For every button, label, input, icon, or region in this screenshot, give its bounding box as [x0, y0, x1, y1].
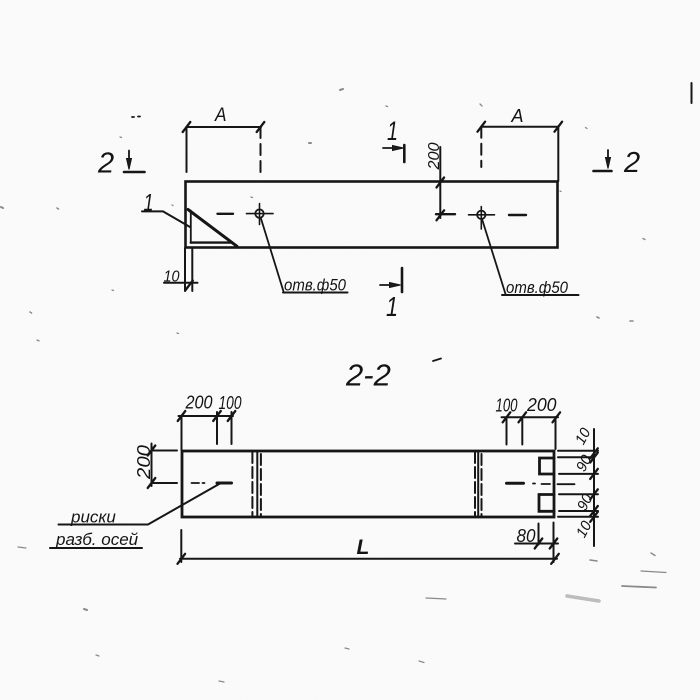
svg-text:разб. осей: разб. осей [55, 530, 139, 549]
svg-text:10: 10 [164, 269, 180, 286]
svg-text:отв.ф50: отв.ф50 [284, 276, 346, 295]
svg-text:200: 200 [185, 393, 213, 413]
svg-text:отв.ф50: отв.ф50 [506, 278, 568, 297]
svg-text:риски: риски [70, 508, 116, 527]
svg-text:А: А [214, 105, 226, 126]
svg-text:200: 200 [426, 142, 443, 170]
svg-text:2: 2 [623, 147, 640, 179]
svg-text:1: 1 [386, 291, 398, 322]
svg-text:1: 1 [144, 190, 154, 217]
svg-text:2: 2 [97, 148, 114, 180]
svg-text:200: 200 [134, 445, 154, 480]
svg-text:А: А [511, 106, 524, 126]
svg-text:2-2: 2-2 [345, 358, 391, 393]
svg-text:80: 80 [517, 526, 536, 546]
svg-text:100: 100 [219, 393, 242, 413]
svg-text:L: L [357, 536, 370, 559]
svg-text:1: 1 [387, 116, 398, 146]
svg-text:100: 100 [496, 396, 518, 416]
svg-text:200: 200 [526, 395, 556, 415]
